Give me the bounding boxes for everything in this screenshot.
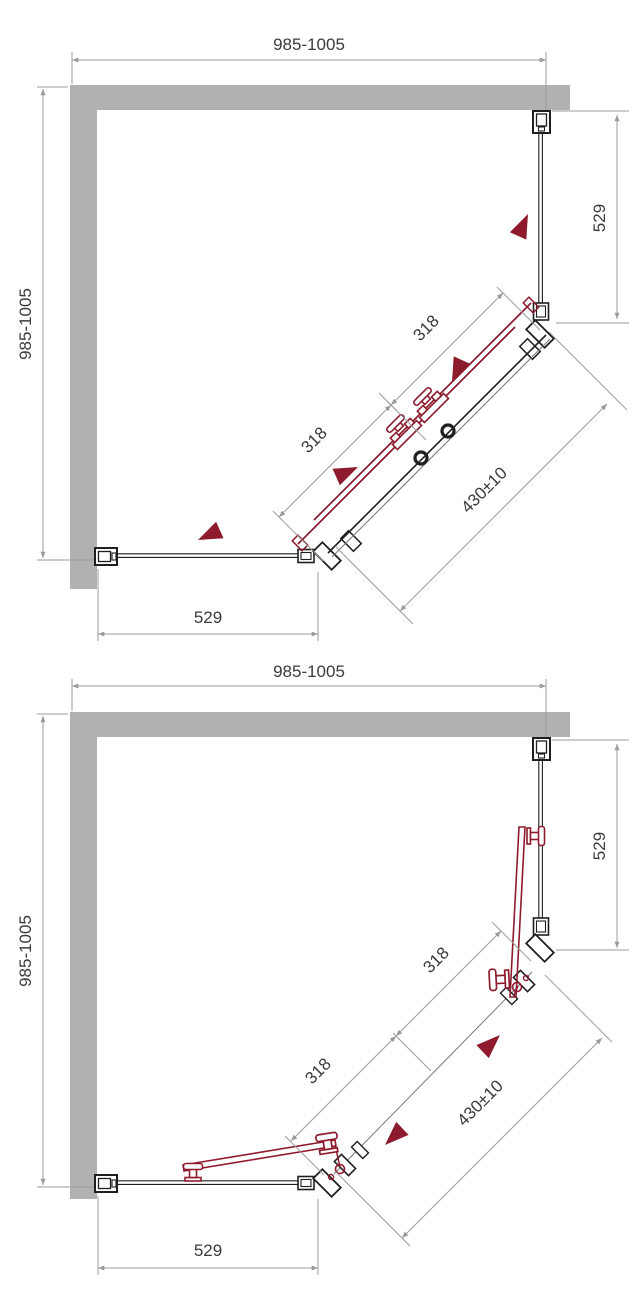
right-panel-label: 529	[590, 204, 609, 232]
diagram-doors-closed: 985-1005 985-1005 529	[0, 0, 637, 650]
roller-carriage	[409, 383, 449, 423]
lower-door-label: 318	[301, 1054, 334, 1087]
open-door-bottom	[183, 1132, 340, 1181]
overall-depth-label: 985-1005	[16, 915, 35, 987]
roller-wheel	[415, 452, 427, 464]
corner-connector-top	[526, 934, 554, 962]
lower-door-label: 318	[297, 423, 330, 456]
bottom-fixed-panel	[95, 531, 361, 570]
open-door-right	[489, 827, 545, 998]
slide-direction-arrow-lower	[198, 467, 358, 540]
dimension-door-leaf: 430±10	[335, 332, 627, 624]
wall-left	[70, 712, 97, 1199]
dimension-door-leaf: 430±10	[336, 975, 612, 1246]
door-clamp-knob	[527, 827, 545, 846]
wall-top	[70, 712, 570, 737]
wall-left	[70, 85, 97, 589]
dimension-right-panel: 529	[552, 111, 629, 323]
rail-end-cap-bottom	[341, 531, 362, 552]
upper-door-label: 318	[419, 943, 452, 976]
dimension-upper-door: 318	[391, 287, 540, 405]
bottom-fixed-panel	[95, 1169, 341, 1197]
bottom-panel-label: 529	[194, 608, 222, 627]
overall-depth-label: 985-1005	[16, 288, 35, 360]
door-leaf-label: 430±10	[453, 1076, 506, 1129]
dimension-bottom-panel: 529	[98, 1196, 318, 1275]
overall-width-label: 985-1005	[273, 35, 345, 54]
threshold-line	[334, 972, 532, 1174]
diagram-doors-open: 985-1005 985-1005 529	[0, 650, 637, 1300]
technical-drawing-page: 985-1005 985-1005 529	[0, 0, 637, 1300]
door-stopper-knob	[184, 1164, 203, 1182]
roller-wheel	[442, 425, 454, 437]
right-fixed-panel	[526, 738, 554, 962]
walls	[70, 712, 570, 1199]
door-handle-knob	[489, 968, 510, 990]
overall-width-label: 985-1005	[273, 662, 345, 681]
dimension-right-panel: 529	[552, 740, 629, 950]
door-rail	[328, 335, 546, 553]
slide-direction-arrow-upper	[452, 214, 528, 382]
rail-end-cap-top	[520, 339, 541, 360]
bottom-panel-label: 529	[194, 1241, 222, 1260]
right-panel-label: 529	[590, 832, 609, 860]
wall-top	[70, 85, 570, 110]
dimension-bottom-panel: 529	[98, 569, 318, 641]
upper-door-label: 318	[409, 311, 442, 344]
